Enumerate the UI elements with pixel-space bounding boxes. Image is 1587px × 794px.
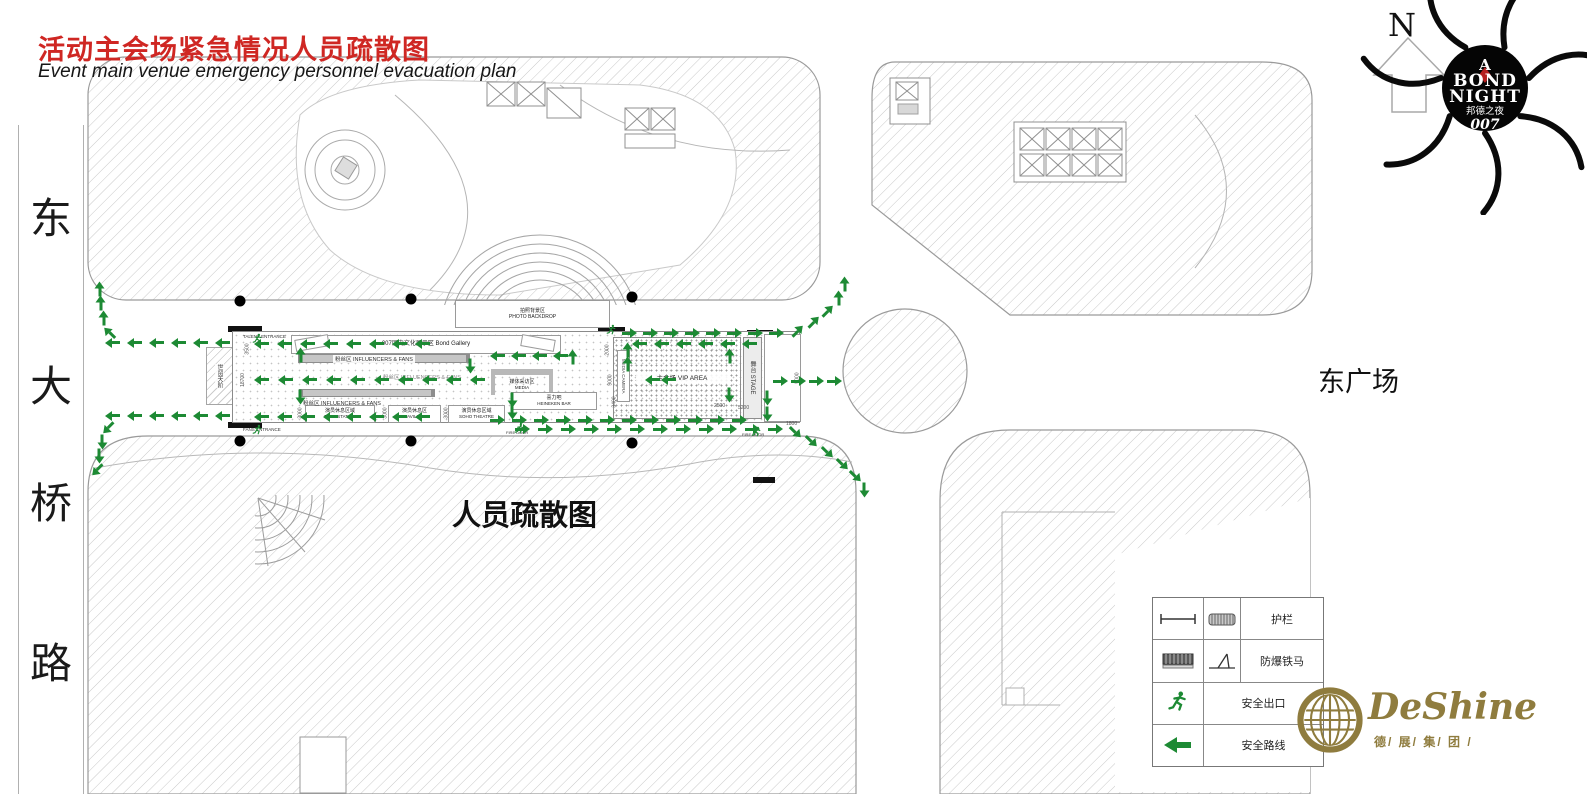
road-char: 东 xyxy=(19,185,83,246)
evacuation-arrow xyxy=(96,296,106,311)
evacuation-arrow xyxy=(508,405,518,420)
evacuation-arrow xyxy=(763,391,773,406)
fans-zone-label-top: 粉丝区 INFLUENCERS & FANS xyxy=(333,355,415,363)
evacuation-arrow xyxy=(99,311,109,326)
evacuation-arrow xyxy=(422,375,437,385)
evacuation-arrow xyxy=(720,339,735,349)
east-plaza-label: 东广场 xyxy=(1318,360,1399,399)
evacuation-arrow xyxy=(791,376,806,386)
evacuation-arrow xyxy=(98,435,108,450)
guardrail-fence-icon xyxy=(1204,598,1241,639)
running-man-icon xyxy=(606,322,617,333)
dimension-label: 5200 xyxy=(738,405,749,411)
dimension-label: 2500 xyxy=(714,403,725,409)
barrier-tripod-icon xyxy=(1204,640,1241,681)
evacuation-arrow xyxy=(326,375,341,385)
evacuation-arrow xyxy=(834,291,844,306)
page-title-en: Event main venue emergency personnel eva… xyxy=(38,61,516,83)
fans-zone-label-bottom: 粉丝区 INFLUENCERS & FANS xyxy=(303,399,381,407)
evacuation-arrow xyxy=(568,350,578,365)
road-char: 桥 xyxy=(19,470,83,531)
evacuation-arrow xyxy=(127,338,142,348)
evacuation-arrow xyxy=(323,412,338,422)
photo-backdrop-zone: 拍照背景区 PHOTO BACKDROP xyxy=(455,300,610,328)
legend-label: 防爆铁马 xyxy=(1241,640,1323,681)
evacuation-arrow xyxy=(654,339,669,349)
evacuation-arrow xyxy=(676,339,691,349)
evacuation-arrow xyxy=(193,338,208,348)
tube-station-booth: 演员休息区域TUBE STATION xyxy=(305,405,375,423)
evacuation-plan-canvas: 活动主会场紧急情况人员疏散图 Event main venue emergenc… xyxy=(0,0,1587,794)
evacuation-arrow xyxy=(664,328,679,338)
fans-zone-bar-bottom xyxy=(299,389,435,397)
road-east-daqiao: 东 大 桥 路 xyxy=(18,125,84,794)
running-man-icon xyxy=(751,424,762,435)
evacuation-arrow xyxy=(698,339,713,349)
svg-text:邦德之夜: 邦德之夜 xyxy=(1466,105,1505,117)
legend-row-barrier: 防爆铁马 xyxy=(1153,640,1323,682)
evacuation-arrow xyxy=(105,411,120,421)
evacuation-arrow xyxy=(699,424,714,434)
evacuation-arrow xyxy=(742,339,757,349)
dimension-label: 3000 xyxy=(444,407,450,418)
evacuation-arrow xyxy=(511,351,526,361)
evacuation-arrow xyxy=(725,388,735,403)
evacuation-arrow xyxy=(722,424,737,434)
evacuation-arrow xyxy=(632,339,647,349)
evacuation-arrow xyxy=(748,328,763,338)
running-man-icon xyxy=(1153,683,1204,724)
evacuation-arrow xyxy=(323,339,338,349)
evacuation-arrow xyxy=(149,338,164,348)
dimension-label: 3400 xyxy=(612,396,618,407)
building-bottom-left xyxy=(88,432,856,794)
evacuation-arrow xyxy=(584,424,599,434)
evacuation-arrow xyxy=(302,375,317,385)
north-letter: N xyxy=(1388,6,1416,44)
evacuation-arrow xyxy=(773,376,788,386)
evacuation-arrow xyxy=(415,412,430,422)
evacuation-arrow xyxy=(661,375,676,385)
evacuation-arrow xyxy=(149,411,164,421)
evacuation-arrow xyxy=(392,412,407,422)
evacuation-arrow xyxy=(725,349,735,364)
plaza-circle xyxy=(843,309,967,433)
evacuation-arrow xyxy=(215,338,230,348)
evacuation-arrow xyxy=(553,351,568,361)
deshine-globe-icon xyxy=(1290,680,1370,760)
evacuation-arrow xyxy=(278,375,293,385)
heineken-bar-zone: 喜力吧HEINEKEN BAR xyxy=(511,392,597,410)
the-place-label: 世贸天阶 xyxy=(215,364,224,388)
running-man-icon xyxy=(252,422,263,433)
evacuation-arrow xyxy=(446,375,461,385)
evacuation-arrow xyxy=(392,339,407,349)
running-man-icon xyxy=(252,331,263,342)
evacuation-arrow xyxy=(369,412,384,422)
evacuation-arrow xyxy=(727,328,742,338)
evacuation-arrow xyxy=(415,339,430,349)
svg-text:007: 007 xyxy=(1470,117,1499,133)
evacuation-arrow xyxy=(350,375,365,385)
evacuation-arrow xyxy=(254,375,269,385)
building-top-right xyxy=(872,62,1312,315)
evacuation-arrow xyxy=(171,338,186,348)
evacuation-arrow xyxy=(532,351,547,361)
evacuation-arrow xyxy=(95,282,105,297)
evacuation-arrow xyxy=(622,328,637,338)
legend-label: 护栏 xyxy=(1241,598,1323,639)
evacuation-arrow xyxy=(645,375,660,385)
evacuation-arrow xyxy=(346,412,361,422)
evacuation-arrow xyxy=(607,424,622,434)
evacuation-arrow xyxy=(490,415,505,425)
deshine-logo-name: DeShine xyxy=(1368,686,1587,728)
dimension-label: 18700 xyxy=(240,373,246,387)
evacuation-arrow xyxy=(630,424,645,434)
dimension-label: 9000 xyxy=(608,374,614,385)
evacuation-arrow xyxy=(769,328,784,338)
photo-backdrop-en: PHOTO BACKDROP xyxy=(509,314,556,320)
evacuation-arrow xyxy=(127,411,142,421)
evacuation-arrow xyxy=(296,390,306,405)
evacuation-arrow xyxy=(490,351,505,361)
evacuation-arrow xyxy=(676,424,691,434)
evacuation-arrow xyxy=(561,424,576,434)
evacuation-arrow xyxy=(706,328,721,338)
evacuation-arrow xyxy=(643,328,658,338)
compass-and-bond-logo: N A BOND NIGHT 邦德之夜 007 xyxy=(1340,0,1587,215)
evacuation-arrow xyxy=(277,412,292,422)
evacuation-arrow xyxy=(809,376,824,386)
evacuation-arrow xyxy=(296,348,306,363)
deshine-logo-subtitle: 德/ 展/ 集/ 团 / xyxy=(1374,733,1473,750)
evacuation-arrow xyxy=(653,424,668,434)
evacuation-arrow xyxy=(171,411,186,421)
evacuation-arrow xyxy=(685,328,700,338)
evacuation-arrow xyxy=(300,412,315,422)
dimension-label: 3500 xyxy=(245,343,251,354)
evacuation-arrow xyxy=(768,424,783,434)
evacuation-arrow xyxy=(470,375,485,385)
evacuation-arrow xyxy=(623,343,633,358)
evacuation-arrow xyxy=(623,357,633,372)
svg-text:NIGHT: NIGHT xyxy=(1449,87,1521,107)
evacuation-arrow xyxy=(763,407,773,422)
evacuation-arrow xyxy=(374,375,389,385)
evacuation-arrow xyxy=(398,375,413,385)
route-arrow-icon xyxy=(1153,725,1204,766)
evacuation-map-label: 人员疏散图 xyxy=(452,492,597,534)
dimension-label: 2000 xyxy=(605,344,611,355)
evacuation-arrow xyxy=(346,339,361,349)
evacuation-arrow xyxy=(840,277,850,292)
running-man-icon xyxy=(514,421,525,432)
evacuation-arrow xyxy=(215,411,230,421)
legend-row-guardrail: 护栏 xyxy=(1153,598,1323,640)
evacuation-arrow xyxy=(538,424,553,434)
evacuation-arrow xyxy=(277,339,292,349)
the-place-block: 世贸天阶 xyxy=(206,347,233,405)
evacuation-arrow xyxy=(254,412,269,422)
barrier-fence-icon xyxy=(1153,640,1204,681)
evacuation-arrow xyxy=(860,483,870,498)
evacuation-arrow xyxy=(369,339,384,349)
road-char: 大 xyxy=(19,353,83,414)
guardrail-line-icon xyxy=(1153,598,1204,639)
evacuation-arrow xyxy=(193,411,208,421)
road-char: 路 xyxy=(19,630,83,691)
evacuation-arrow xyxy=(827,376,842,386)
evacuation-arrow xyxy=(466,359,476,374)
